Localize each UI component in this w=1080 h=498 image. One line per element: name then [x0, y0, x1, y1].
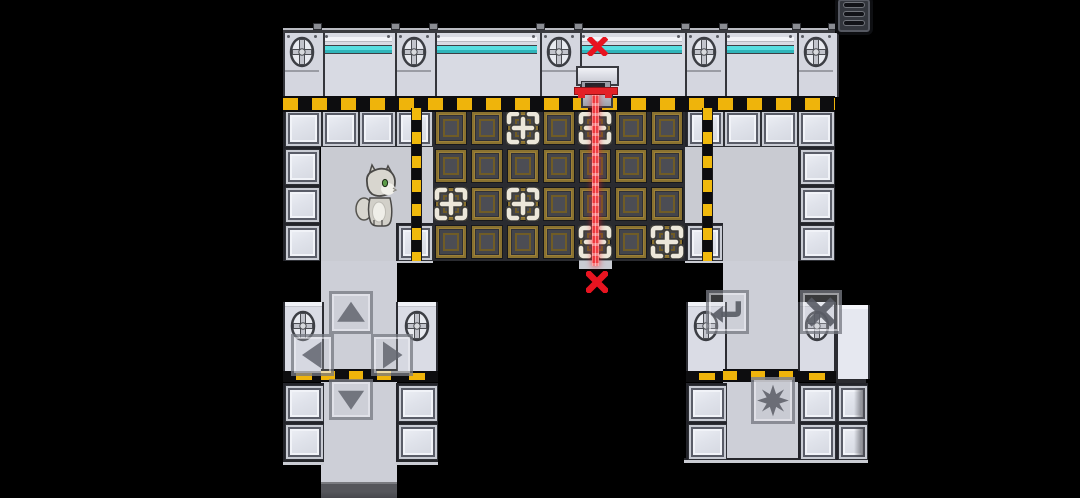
hamburger-menu-icon — [843, 20, 865, 26]
hazard-yellow-block — [699, 373, 715, 380]
crate-inner-panel — [515, 233, 531, 251]
wall-tile — [688, 424, 727, 460]
wall-tile — [800, 424, 836, 460]
wall-tile — [800, 187, 835, 223]
wall-tile — [800, 149, 835, 185]
porthole-icon — [401, 36, 427, 68]
hazard-stripe — [686, 371, 727, 382]
crate-tile — [507, 225, 539, 259]
panel-screw — [437, 35, 440, 38]
target-marker — [434, 187, 468, 221]
dpad-right-button[interactable] — [371, 334, 413, 376]
crate-inner-panel — [623, 119, 639, 137]
dpad-left-button[interactable] — [291, 334, 334, 376]
wall-tile — [285, 385, 324, 422]
accent-cyan-stripe — [324, 45, 392, 54]
top-wall-notch — [391, 23, 400, 30]
crate-tile — [615, 225, 647, 259]
wall-tile — [800, 385, 836, 422]
crate-inner-panel — [623, 233, 639, 251]
leg-base-edge — [283, 462, 324, 465]
top-wall-panel — [321, 33, 397, 97]
accent-cyan-stripe — [726, 45, 794, 54]
porthole-icon — [401, 36, 427, 68]
crate-tile — [507, 149, 539, 183]
menu-button[interactable] — [835, 0, 873, 35]
crate-tile — [651, 111, 683, 145]
panel-screw — [677, 35, 680, 38]
hazard-yellow-block — [809, 373, 825, 380]
hamburger-menu-icon — [843, 11, 865, 17]
porthole-icon — [289, 36, 315, 68]
wall-tile — [285, 225, 320, 261]
wall-tile — [359, 110, 396, 147]
crate-tile — [615, 149, 647, 183]
crate-inner-panel — [551, 195, 567, 213]
crate-tile — [435, 111, 467, 145]
laser-beam — [592, 90, 599, 266]
top-wall-notch — [313, 23, 322, 30]
target-marker-icon — [506, 187, 540, 221]
crate-inner-panel — [479, 119, 495, 137]
laser-emitter-nub — [605, 94, 612, 98]
top-wall-trim — [324, 37, 392, 42]
target-marker-icon — [506, 111, 540, 145]
eight-point-star-icon — [754, 380, 792, 421]
crate-inner-panel — [443, 119, 459, 137]
crate-tile — [471, 225, 503, 259]
crate-inner-panel — [551, 157, 567, 175]
top-wall-notch — [429, 23, 438, 30]
crate-tile — [543, 187, 575, 221]
game-viewport — [0, 0, 1080, 498]
hazard-bar-top — [283, 96, 835, 112]
crate-tile — [543, 149, 575, 183]
porthole-icon — [289, 36, 315, 68]
blocked-x-icon — [587, 37, 608, 56]
return-arrow-icon — [709, 293, 746, 331]
panel-screw — [727, 35, 730, 38]
wall-tile — [838, 424, 868, 460]
crate-inner-panel — [479, 195, 495, 213]
corridor-left-lower-floor — [321, 482, 397, 498]
crate-inner-panel — [443, 233, 459, 251]
leg-base-edge — [684, 460, 868, 463]
target-marker — [506, 111, 540, 145]
top-wall-trim — [726, 37, 794, 42]
laser-emitter-nub — [578, 94, 585, 98]
crate-tile — [435, 225, 467, 259]
interact-button[interactable] — [751, 377, 795, 424]
crate-tile — [615, 111, 647, 145]
crate-tile — [435, 149, 467, 183]
crate-inner-panel — [515, 157, 531, 175]
hazard-pole — [411, 108, 422, 261]
crate-inner-panel — [623, 157, 639, 175]
pillar-divider — [799, 70, 833, 72]
panel-divider — [836, 379, 866, 383]
wall-tile — [398, 424, 438, 460]
wall-tile — [798, 110, 835, 147]
blocked-x-icon — [586, 271, 608, 293]
top-wall-notch — [574, 23, 583, 30]
crate-inner-panel — [659, 119, 675, 137]
crate-inner-panel — [659, 195, 675, 213]
target-marker — [650, 225, 684, 259]
crate-tile — [615, 187, 647, 221]
wall-tile — [838, 385, 868, 422]
porthole-icon — [803, 36, 829, 68]
blocked-x-icon — [586, 271, 608, 293]
crate-tile — [543, 225, 575, 259]
accent-cyan-stripe — [436, 45, 537, 54]
pillar-divider — [285, 70, 319, 72]
crate-tile — [471, 187, 503, 221]
panel-screw — [789, 35, 792, 38]
panel-screw — [387, 35, 390, 38]
crate-inner-panel — [551, 119, 567, 137]
crate-inner-panel — [479, 157, 495, 175]
target-marker-icon — [434, 187, 468, 221]
crate-tile — [651, 187, 683, 221]
crate-inner-panel — [551, 233, 567, 251]
top-wall-trim — [436, 37, 537, 42]
triangle-left-icon — [294, 337, 331, 373]
close-button[interactable] — [800, 290, 842, 334]
crate-tile — [543, 111, 575, 145]
panel-screw — [532, 35, 535, 38]
wall-tile — [285, 424, 324, 460]
pillar-divider — [542, 70, 576, 72]
wall-tile — [285, 149, 320, 185]
crate-inner-panel — [479, 233, 495, 251]
hamburger-menu-icon — [843, 2, 865, 8]
porthole-icon — [691, 36, 717, 68]
cat-sprite — [352, 162, 402, 228]
wall-tile — [285, 187, 320, 223]
wall-tile — [800, 225, 835, 261]
top-wall-panel — [433, 33, 542, 97]
top-wall-panel — [723, 33, 799, 97]
x-mark-icon — [803, 293, 839, 331]
pillar-divider — [687, 70, 721, 72]
dpad-up-button[interactable] — [329, 291, 373, 334]
wall-tile — [761, 110, 798, 147]
target-marker-icon — [650, 225, 684, 259]
crate-tile — [651, 149, 683, 183]
porthole-icon — [546, 36, 572, 68]
top-wall-notch — [719, 23, 728, 30]
undo-button[interactable] — [706, 290, 749, 334]
wall-tile — [322, 110, 359, 147]
player-character-cat — [352, 162, 402, 228]
crate-inner-panel — [443, 157, 459, 175]
wall-tile — [285, 110, 322, 147]
triangle-down-icon — [332, 382, 370, 417]
crate-tile — [471, 149, 503, 183]
wall-tile — [688, 385, 727, 422]
hazard-stripe — [798, 371, 836, 382]
top-wall-notch — [681, 23, 690, 30]
triangle-up-icon — [332, 294, 370, 331]
crate-inner-panel — [659, 157, 675, 175]
top-wall-notch — [536, 23, 545, 30]
top-wall-notch — [792, 23, 801, 30]
porthole-icon — [546, 36, 572, 68]
leg-base-edge — [396, 462, 438, 465]
panel-screw — [325, 35, 328, 38]
hazard-pole — [702, 108, 713, 261]
wall-tile — [398, 385, 438, 422]
porthole-icon — [691, 36, 717, 68]
porthole-icon — [803, 36, 829, 68]
blocked-x-icon — [587, 37, 608, 56]
pillar-divider — [397, 70, 431, 72]
crate-inner-panel — [623, 195, 639, 213]
target-marker — [506, 187, 540, 221]
panel-screw — [582, 35, 585, 38]
crate-tile — [471, 111, 503, 145]
dpad-down-button[interactable] — [329, 379, 373, 420]
triangle-right-icon — [374, 337, 410, 373]
wall-tile — [724, 110, 761, 147]
